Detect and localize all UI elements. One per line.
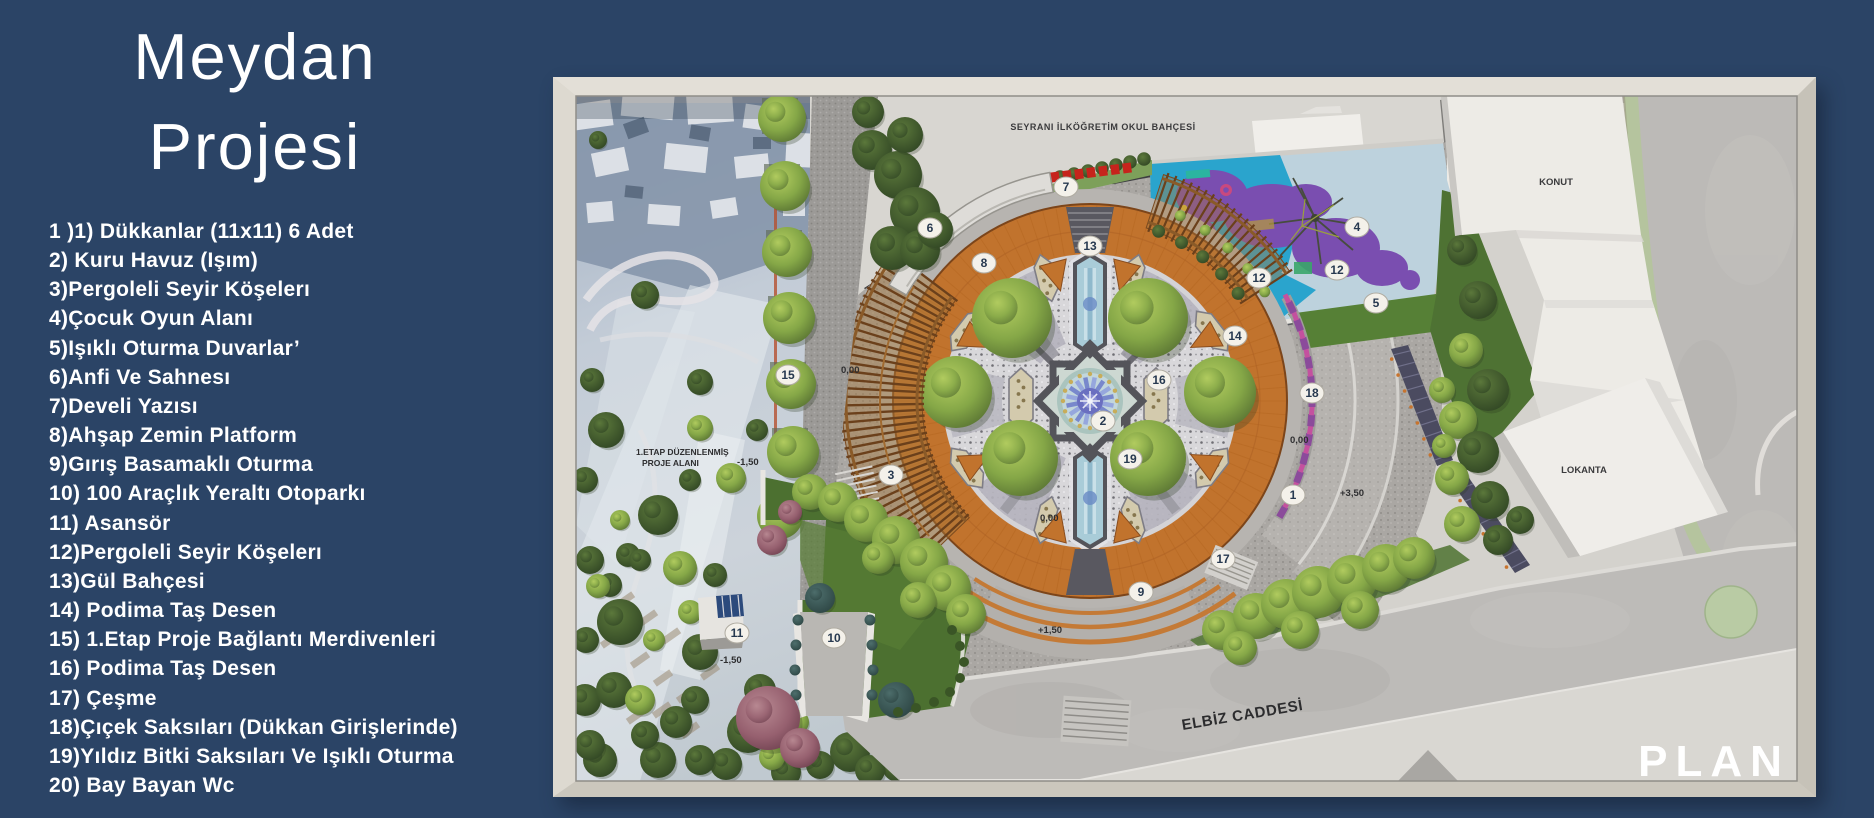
- svg-text:0,00: 0,00: [1040, 513, 1059, 524]
- svg-text:+1,50: +1,50: [1038, 625, 1062, 636]
- svg-text:8: 8: [981, 256, 988, 270]
- svg-text:15: 15: [781, 368, 795, 382]
- svg-text:19: 19: [1123, 452, 1137, 466]
- svg-text:-1,50: -1,50: [720, 655, 742, 666]
- svg-text:9: 9: [1138, 585, 1145, 599]
- svg-text:PLAN: PLAN: [1638, 737, 1790, 786]
- svg-text:6: 6: [927, 221, 934, 235]
- svg-text:14: 14: [1228, 329, 1242, 343]
- svg-text:0,00: 0,00: [841, 365, 860, 376]
- svg-text:0,00: 0,00: [1290, 435, 1309, 446]
- svg-text:PROJE ALANI: PROJE ALANI: [642, 458, 699, 468]
- svg-text:5: 5: [1373, 296, 1380, 310]
- svg-text:4: 4: [1354, 220, 1361, 234]
- svg-text:13: 13: [1083, 239, 1097, 253]
- svg-text:16: 16: [1152, 373, 1166, 387]
- svg-text:10: 10: [827, 631, 841, 645]
- svg-text:17: 17: [1216, 552, 1230, 566]
- svg-text:SEYRANI İLKÖĞRETİM OKUL BAHÇES: SEYRANI İLKÖĞRETİM OKUL BAHÇESİ: [1010, 121, 1195, 132]
- svg-text:+3,50: +3,50: [1340, 488, 1364, 499]
- svg-text:12: 12: [1252, 271, 1266, 285]
- svg-text:18: 18: [1305, 386, 1319, 400]
- svg-text:12: 12: [1330, 263, 1344, 277]
- svg-text:2: 2: [1100, 414, 1107, 428]
- svg-text:-1,50: -1,50: [737, 457, 759, 468]
- svg-text:LOKANTA: LOKANTA: [1561, 465, 1607, 476]
- svg-text:11: 11: [731, 626, 744, 640]
- svg-text:7: 7: [1063, 180, 1070, 194]
- svg-text:KONUT: KONUT: [1539, 177, 1573, 188]
- svg-text:1.ETAP DÜZENLENMİŞ: 1.ETAP DÜZENLENMİŞ: [636, 447, 729, 457]
- svg-text:3: 3: [888, 468, 895, 482]
- svg-text:1: 1: [1290, 488, 1297, 502]
